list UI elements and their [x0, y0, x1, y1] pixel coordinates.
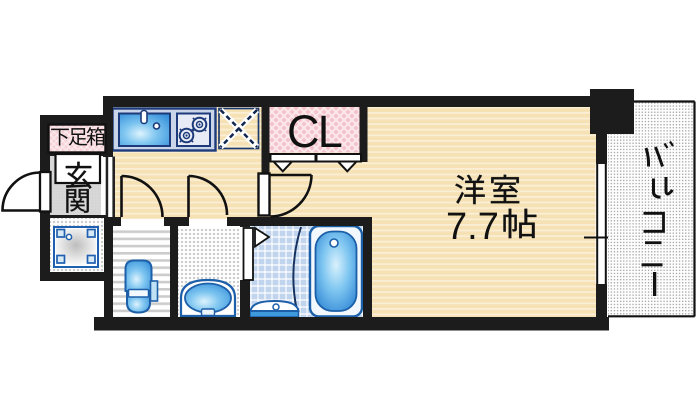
svg-text:CL: CL	[287, 106, 342, 157]
svg-text:7.7: 7.7	[446, 206, 499, 248]
